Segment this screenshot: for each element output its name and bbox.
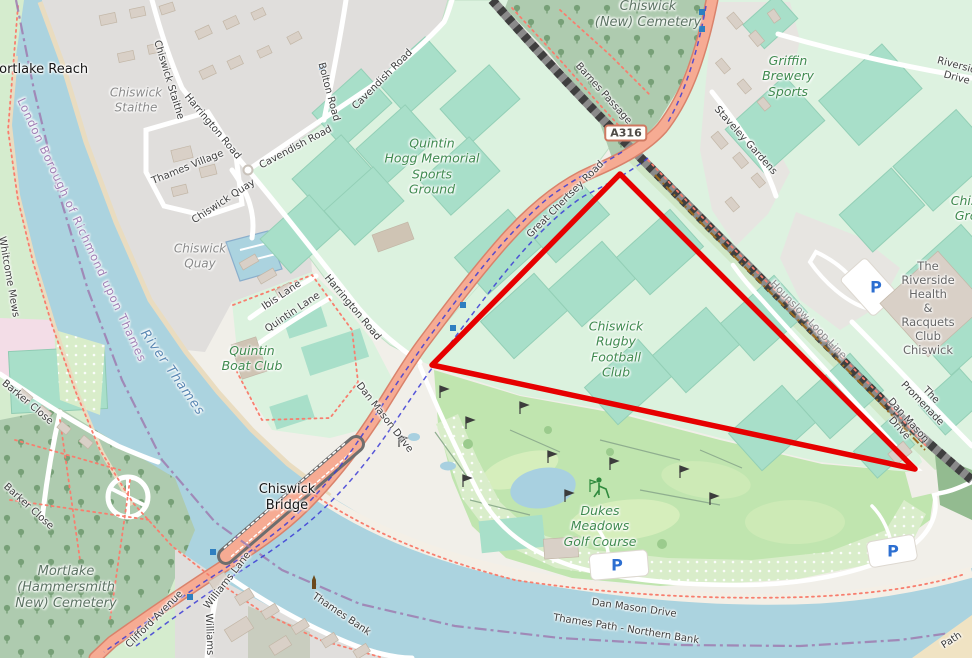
map-graphics bbox=[0, 0, 972, 658]
a316-route-badge: A316 bbox=[604, 125, 647, 142]
map-canvas[interactable]: Mortlake Reach Chiswick Staithe Chiswick… bbox=[0, 0, 972, 658]
